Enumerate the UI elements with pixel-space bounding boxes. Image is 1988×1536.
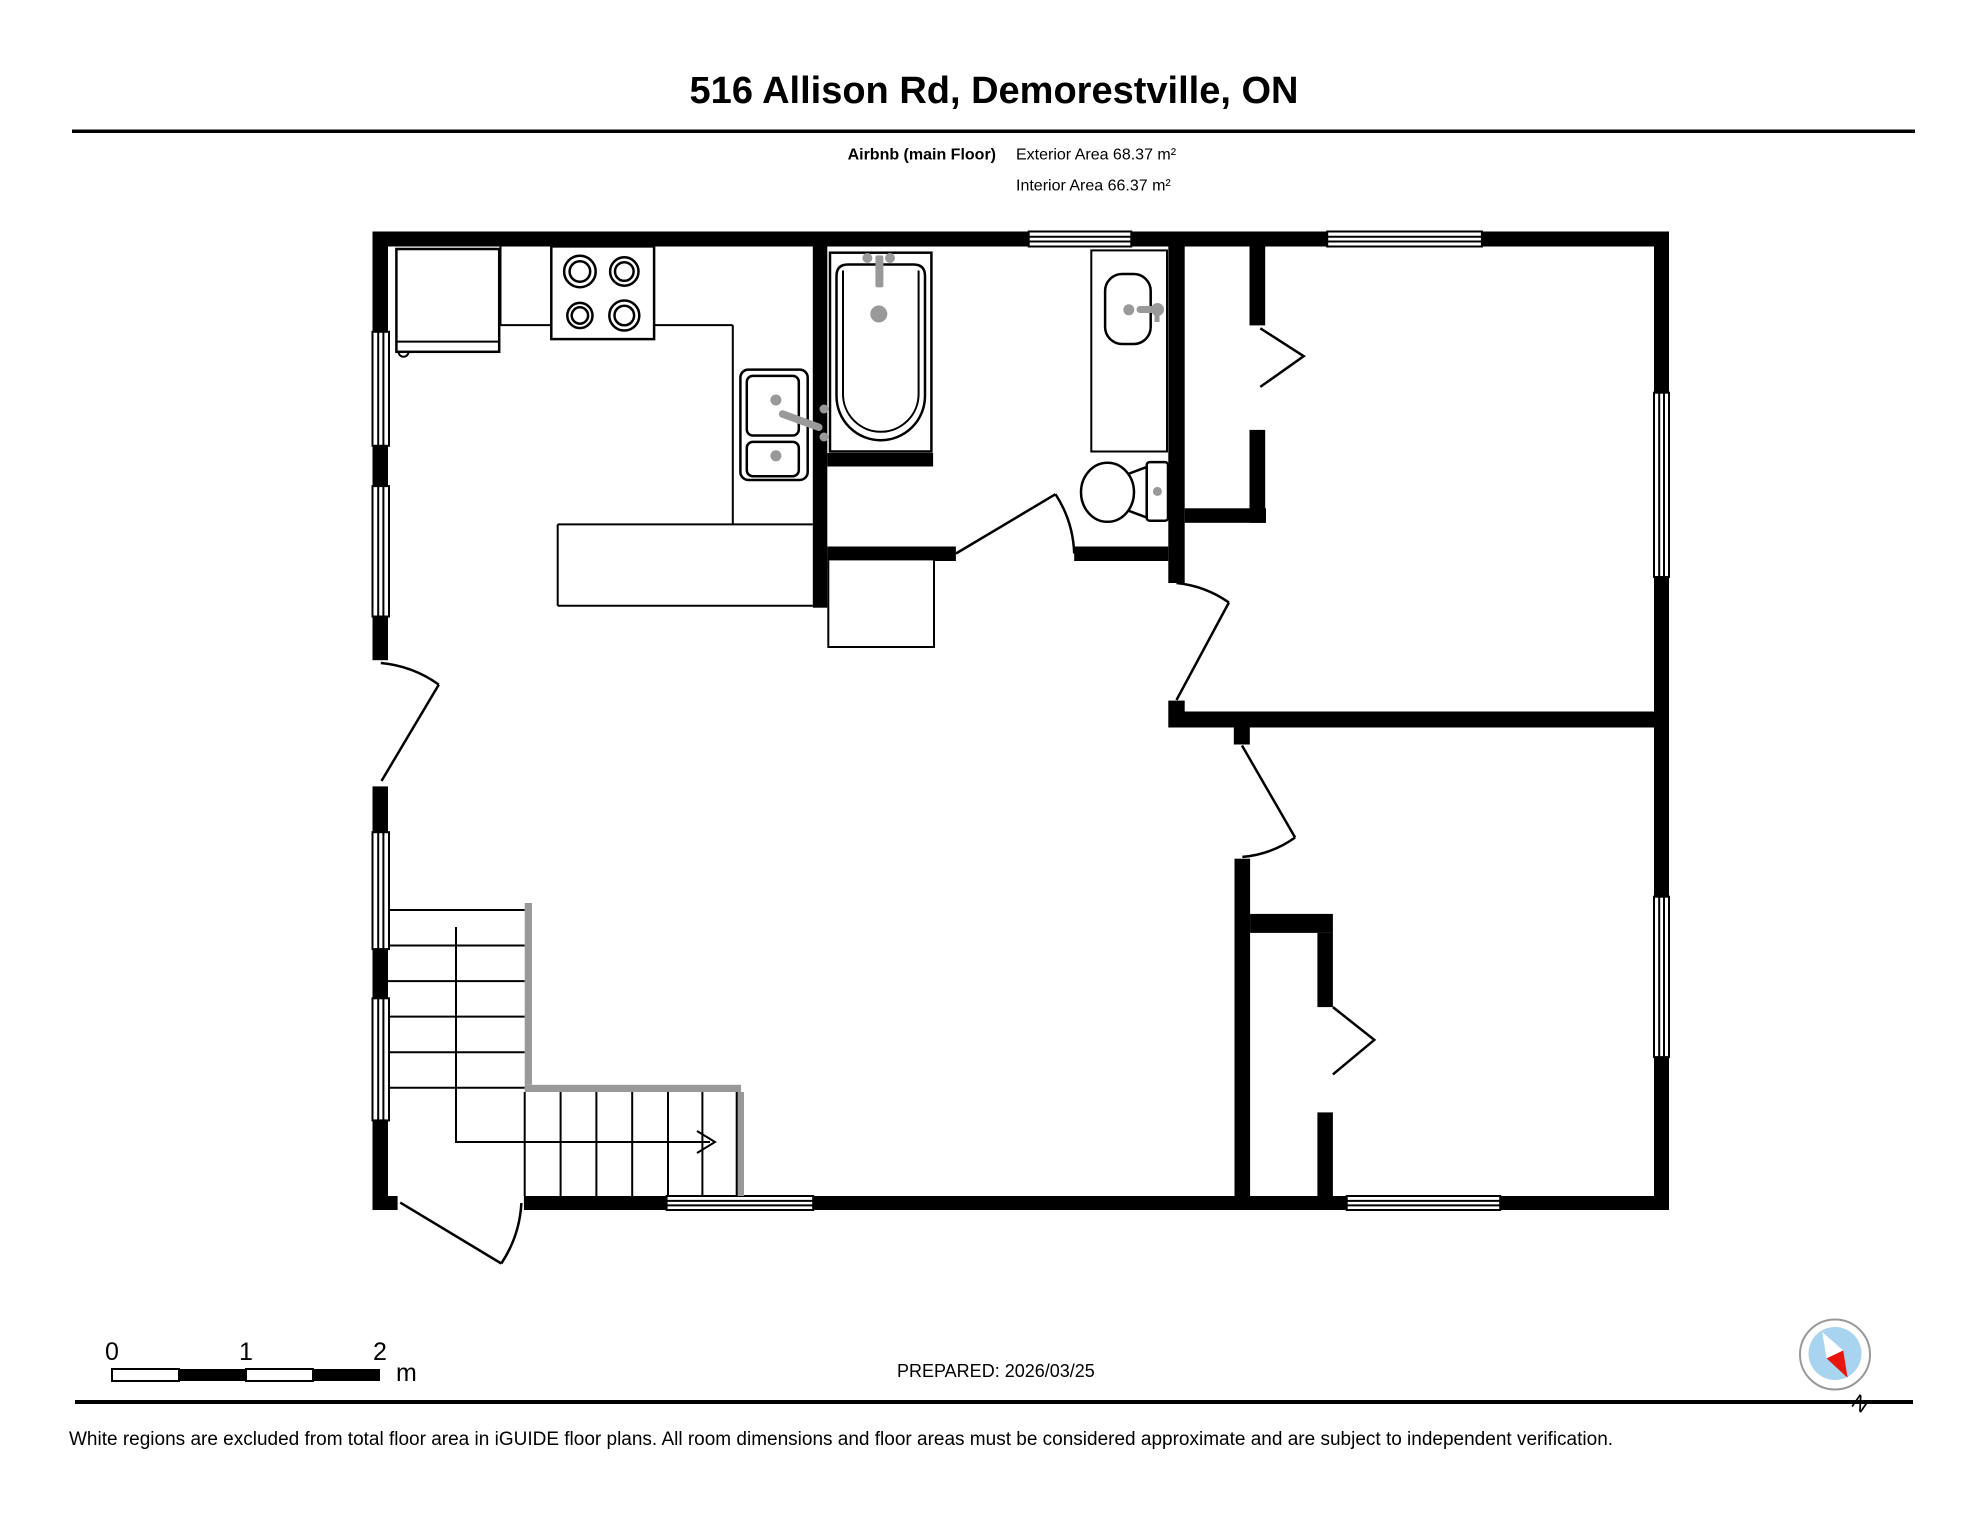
svg-text:Interior Area 66.37 m²: Interior Area 66.37 m² <box>1016 177 1171 194</box>
svg-text:516 Allison Rd, Demorestville,: 516 Allison Rd, Demorestville, ON <box>690 70 1299 112</box>
svg-text:Airbnb (main Floor): Airbnb (main Floor) <box>848 147 996 164</box>
svg-text:1: 1 <box>239 1338 253 1366</box>
svg-text:m: m <box>396 1359 417 1387</box>
svg-text:2: 2 <box>373 1338 387 1366</box>
svg-text:0: 0 <box>105 1338 119 1366</box>
svg-text:Exterior Area 68.37 m²: Exterior Area 68.37 m² <box>1016 147 1177 164</box>
svg-text:White regions are excluded fro: White regions are excluded from total fl… <box>69 1429 1613 1450</box>
svg-text:PREPARED: 2026/03/25: PREPARED: 2026/03/25 <box>897 1361 1095 1381</box>
